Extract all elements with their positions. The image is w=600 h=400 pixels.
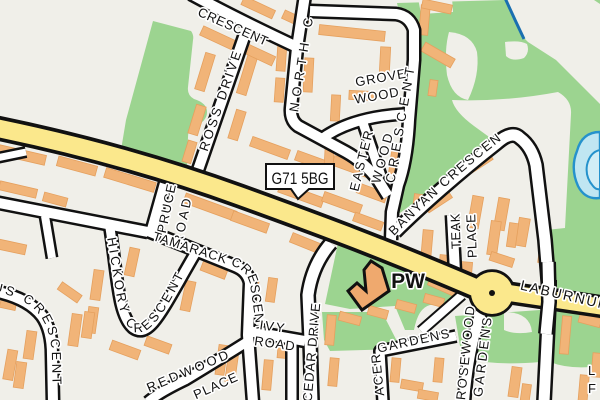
- svg-text:G71 5BG: G71 5BG: [272, 169, 329, 188]
- svg-text:F: F: [588, 381, 597, 396]
- svg-text:TEAK: TEAK: [447, 213, 463, 249]
- svg-text:PW: PW: [391, 270, 425, 293]
- svg-text:PLACE: PLACE: [463, 214, 480, 259]
- svg-text:L: L: [588, 363, 596, 378]
